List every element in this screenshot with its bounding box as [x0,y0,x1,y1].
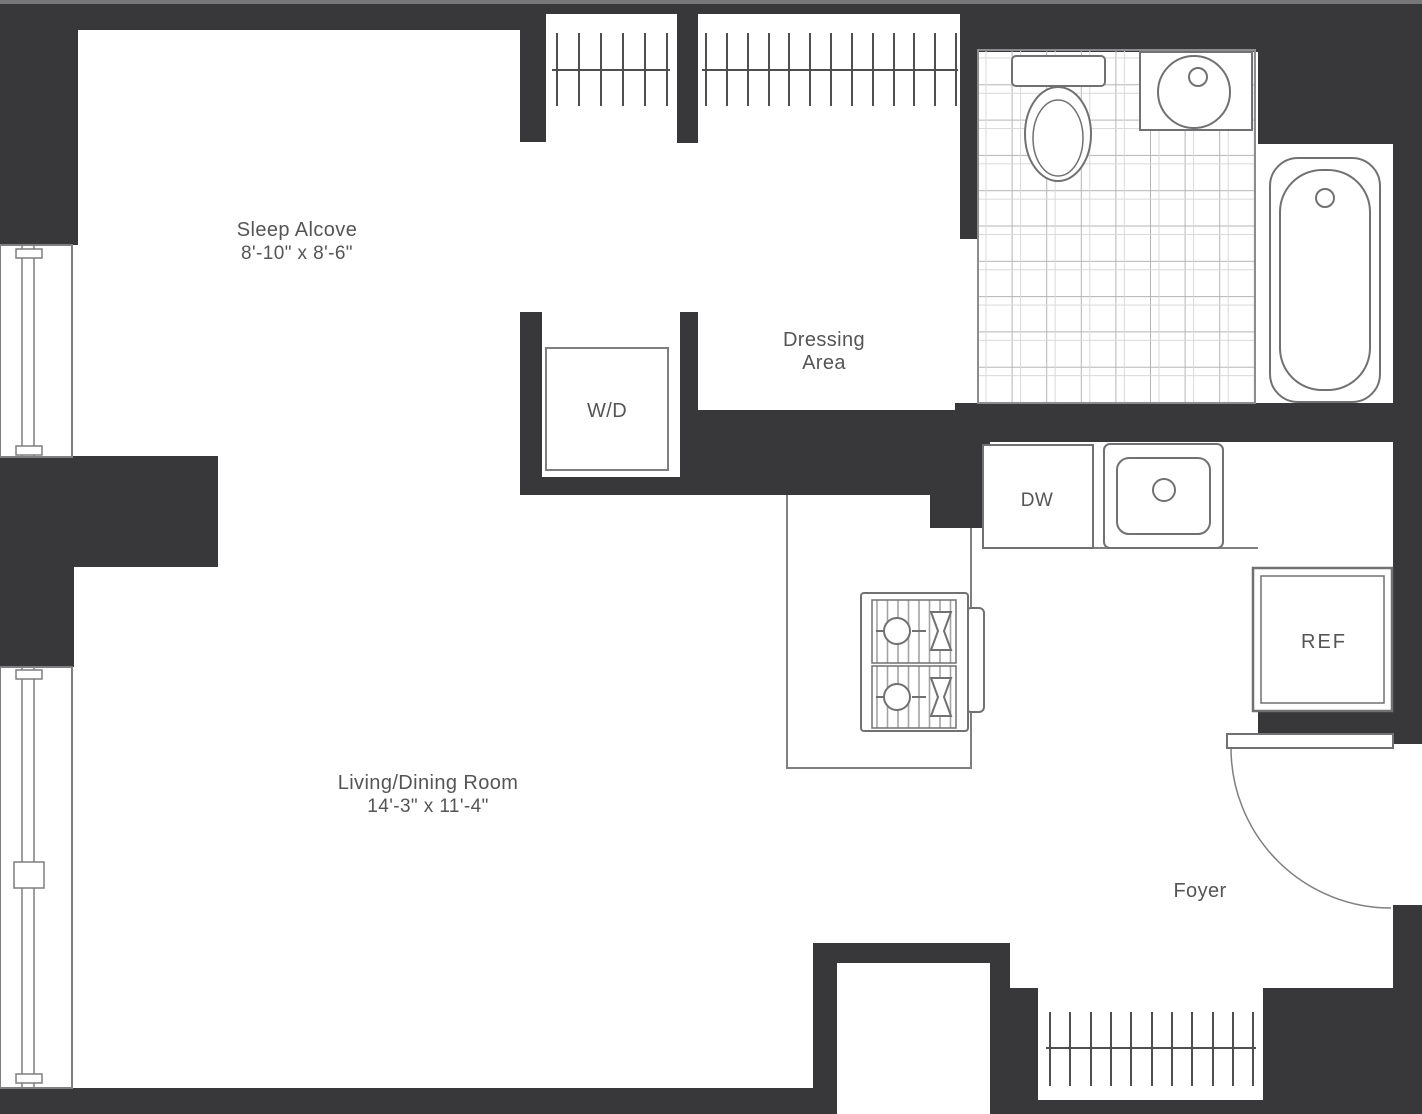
wall-bottom [0,1088,813,1114]
floor-plan: Sleep Alcove 8'-10" x 8'-6" Dressing Are… [0,0,1422,1114]
closet-rod-small-icon [552,33,670,106]
door-leaf [1227,734,1393,748]
wall-left-upper [0,4,78,245]
wall-segment [978,4,1258,52]
room-dimensions: 8'-10" x 8'-6" [237,242,357,265]
room-label-sleep-alcove: Sleep Alcove 8'-10" x 8'-6" [237,219,357,265]
appliance-label-ref: REF [1301,631,1347,654]
room-name: Foyer [1173,880,1226,903]
room-name: Living/Dining Room [338,772,519,795]
room-label-dressing-area: Dressing Area [783,329,865,375]
door-swing-arc [1231,748,1391,908]
closet-rod-foyer-icon [1046,1012,1256,1086]
wall-segment [520,4,978,14]
range-stove-icon [861,593,984,731]
wall-segment [930,495,983,528]
closet-rod-large-icon [702,33,958,106]
wall-closet-divider [677,10,698,143]
wall-closet-bottom [1038,1100,1263,1114]
bathtub-icon [1270,158,1380,402]
wall-segment [813,943,837,1114]
wall-segment [0,456,218,567]
room-name: Dressing [783,329,865,352]
wall-kitchen-top [955,403,1393,442]
windows [0,245,72,1088]
wall-closet-stub [520,10,546,142]
room-dimensions: 14'-3" x 11'-4" [338,795,519,818]
room-name: Area [783,352,865,375]
wall-right [1393,4,1422,744]
vanity-sink-icon [1140,52,1252,130]
wall-below-ref [1258,712,1393,736]
floorplan-drawing [0,0,1422,1114]
entry-door [1227,734,1393,908]
room-label-living-dining: Living/Dining Room 14'-3" x 11'-4" [338,772,519,818]
appliance-label-wd: W/D [587,400,627,423]
appliance-label-dw: DW [1021,489,1053,512]
window-left-upper [0,245,72,457]
window-left-lower [0,667,72,1088]
wall-bathroom-left [960,10,978,239]
kitchen-sink-icon [1104,444,1223,548]
wall-segment [990,963,1010,1114]
wall-wd-left [520,312,542,495]
room-label-foyer: Foyer [1173,880,1226,903]
wall-segment [0,4,546,30]
room-name: Sleep Alcove [237,219,357,242]
wall-corner-bottom-right [1263,988,1422,1114]
wall-segment [1010,988,1038,1114]
wall-wd-right [680,312,698,412]
wall-segment [813,943,1010,963]
wall-segment [520,477,700,495]
wall-segment [0,567,74,667]
wall-segment [680,410,990,495]
